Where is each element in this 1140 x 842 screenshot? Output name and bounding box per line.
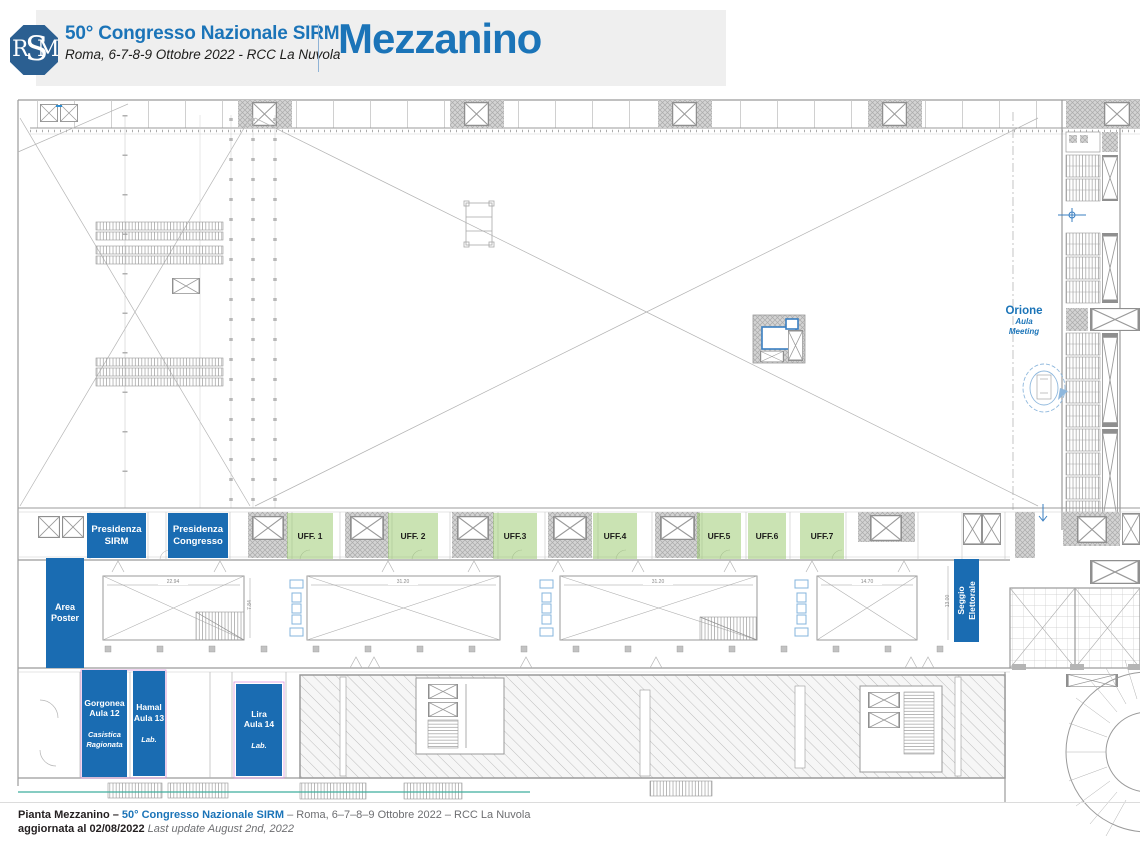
- floor-plan-drawing: [0, 0, 1140, 842]
- footer-divider: [0, 802, 1140, 803]
- room-seggio-elettorale: Seggio Elettorale: [954, 559, 979, 642]
- congress-subtitle: Roma, 6-7-8-9 Ottobre 2022 - RCC La Nuvo…: [65, 47, 340, 62]
- room-orione-label: Orione AulaMeeting: [998, 305, 1050, 337]
- room-gorgonea-aula12: Gorgonea Aula 12 CasisticaRagionata: [82, 670, 127, 777]
- dim-r1-height: 7.84: [247, 595, 253, 615]
- room-presidenza-sirm: Presidenza SIRM: [87, 513, 146, 558]
- dim-r4-width: 14.70: [852, 579, 882, 585]
- office-uff-2: UFF. 2: [388, 513, 438, 559]
- room-lira-aula14: Lira Aula 14 Lab.: [236, 684, 282, 776]
- office-uff-5: UFF.5: [697, 513, 741, 559]
- office-uff-4: UFF.4: [593, 513, 637, 559]
- room-area-poster: Area Poster: [46, 558, 84, 668]
- office-uff-6: UFF.6: [748, 513, 786, 559]
- sirm-logo-icon: R M S: [10, 25, 58, 75]
- dim-r1-width: 22.94: [158, 579, 188, 585]
- dim-r2-width: 31.20: [388, 579, 418, 585]
- footer-line1: Pianta Mezzanino – 50° Congresso Naziona…: [18, 808, 530, 822]
- dim-right-height: 13.00: [945, 591, 951, 611]
- office-uff-7: UFF.7: [800, 513, 844, 559]
- footer-congress-link[interactable]: 50° Congresso Nazionale SIRM: [122, 809, 284, 821]
- room-presidenza-congresso: Presidenza Congresso: [168, 513, 228, 558]
- room-hamal-aula13: Hamal Aula 13 Lab.: [133, 671, 165, 776]
- page: { "header": { "logo_text": "SIRM", "titl…: [0, 0, 1140, 842]
- dim-r3-width: 31.20: [643, 579, 673, 585]
- office-uff-1: UFF. 1: [287, 513, 333, 559]
- congress-title: 50° Congresso Nazionale SIRM: [65, 23, 339, 45]
- header-divider: [318, 24, 319, 72]
- footer-line2: aggiornata al 02/08/2022 Last update Aug…: [18, 822, 530, 836]
- office-uff-3: UFF.3: [493, 513, 537, 559]
- page-title: Mezzanino: [338, 15, 541, 63]
- footer: Pianta Mezzanino – 50° Congresso Naziona…: [18, 808, 530, 836]
